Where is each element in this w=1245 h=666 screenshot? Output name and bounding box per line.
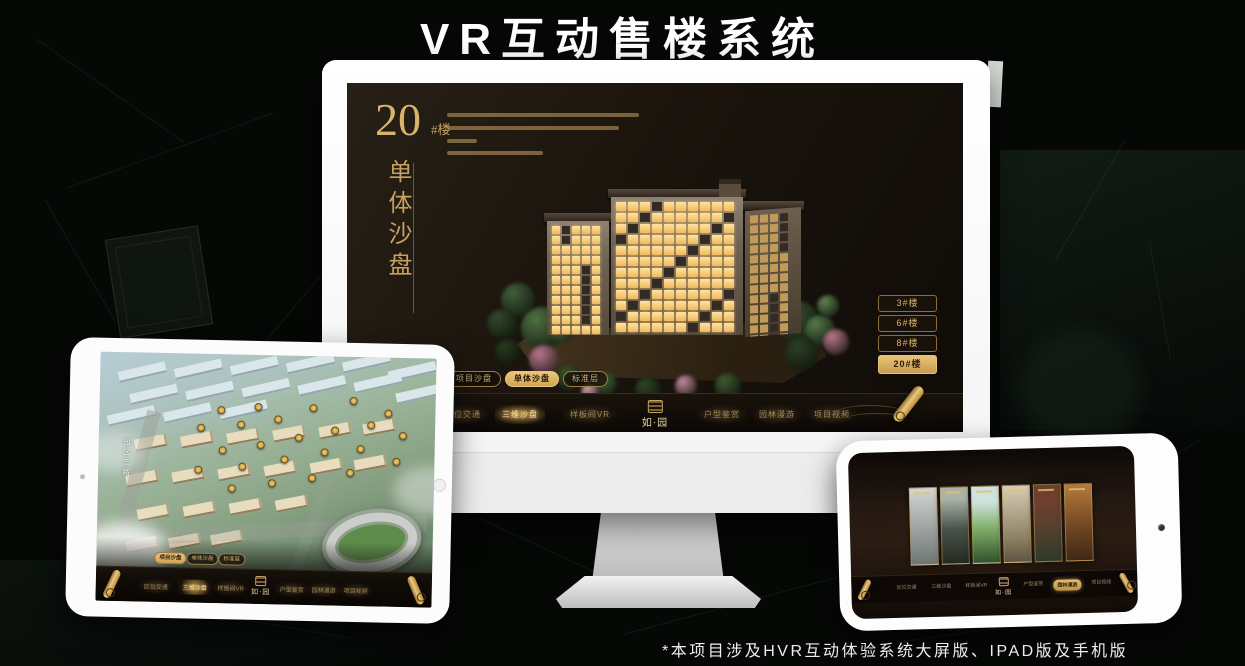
residential-building xyxy=(180,431,214,449)
window xyxy=(700,235,710,244)
window xyxy=(688,202,698,211)
window xyxy=(676,290,686,299)
page-title: VR互动售楼系统 xyxy=(0,3,1245,67)
tablet-nav-bar: 区位交通 三维沙盘 样板间VR 如·园 户型鉴赏 园林漫游 项目视频 xyxy=(95,566,432,608)
window xyxy=(676,257,686,266)
window xyxy=(592,266,600,274)
window xyxy=(582,236,590,244)
white-building xyxy=(174,359,223,380)
window xyxy=(700,323,710,332)
road-name-label: 园区三路 xyxy=(120,438,131,478)
window xyxy=(592,226,600,234)
residential-building xyxy=(354,454,388,472)
window xyxy=(770,214,778,223)
window xyxy=(700,246,710,255)
window xyxy=(780,273,788,282)
nav-item-floorplans[interactable]: 户型鉴赏 xyxy=(275,581,309,597)
window xyxy=(724,268,734,277)
window xyxy=(582,326,590,334)
window xyxy=(688,257,698,266)
window xyxy=(724,235,734,244)
window xyxy=(712,213,722,222)
window xyxy=(640,290,650,299)
window xyxy=(652,213,662,222)
white-building xyxy=(118,361,167,382)
window xyxy=(770,294,778,303)
background-foliage xyxy=(1020,330,1140,450)
building-number-marker[interactable] xyxy=(350,397,358,405)
window xyxy=(572,326,580,334)
window xyxy=(562,316,570,324)
building-button-8[interactable]: 8#楼 xyxy=(878,335,937,352)
window xyxy=(760,274,768,283)
window xyxy=(640,213,650,222)
window xyxy=(640,312,650,321)
window xyxy=(552,236,560,244)
window xyxy=(616,257,626,266)
window xyxy=(688,301,698,310)
window xyxy=(712,323,722,332)
building-number-marker[interactable] xyxy=(399,432,407,440)
window xyxy=(664,202,674,211)
window xyxy=(724,279,734,288)
map-line xyxy=(45,200,116,322)
window xyxy=(750,235,758,244)
scene-panel-study[interactable] xyxy=(1064,483,1094,562)
window xyxy=(562,296,570,304)
building-button-20[interactable]: 20#楼 xyxy=(878,355,937,374)
white-building xyxy=(395,383,436,404)
window xyxy=(652,323,662,332)
tree xyxy=(817,295,839,317)
window xyxy=(712,290,722,299)
brand-logo: 如·园 xyxy=(251,576,271,597)
white-building xyxy=(185,381,234,402)
residential-building xyxy=(136,504,170,522)
window xyxy=(582,246,590,254)
building-number-marker[interactable] xyxy=(197,424,205,432)
building-number-marker[interactable] xyxy=(295,434,303,442)
window xyxy=(552,296,560,304)
window xyxy=(760,234,768,243)
background-plaque xyxy=(105,225,213,338)
window xyxy=(770,304,778,313)
building-number-marker[interactable] xyxy=(228,484,236,492)
monitor-stand-neck xyxy=(592,510,724,582)
window xyxy=(780,283,788,292)
nav-item-garden-roam[interactable]: 园林漫游 xyxy=(307,582,341,598)
cloud xyxy=(393,466,436,517)
phone-device: 区位交通 三维沙盘 样板间VR 如·园 户型鉴赏 园林漫游 项目视频 xyxy=(836,433,1183,632)
scene-panel-interior[interactable] xyxy=(940,486,970,565)
building-number-marker[interactable] xyxy=(268,479,276,487)
phone-camera-icon xyxy=(1158,524,1165,531)
window xyxy=(616,235,626,244)
window xyxy=(724,323,734,332)
building-number-marker[interactable] xyxy=(346,469,354,477)
tablet-app-screen[interactable]: 园区三路 项目沙盘 单体沙盘 标准层 区位交通 三维沙盘 样板间VR 如·园 户… xyxy=(95,352,436,608)
window xyxy=(652,279,662,288)
window xyxy=(616,312,626,321)
building-number-marker[interactable] xyxy=(331,426,339,434)
window xyxy=(552,246,560,254)
window xyxy=(760,284,768,293)
tree xyxy=(785,337,819,371)
window xyxy=(562,226,570,234)
window xyxy=(592,326,600,334)
window xyxy=(552,316,560,324)
scroll-roller-icon[interactable] xyxy=(406,575,425,606)
window xyxy=(700,301,710,310)
window xyxy=(780,213,788,222)
window xyxy=(628,290,638,299)
window xyxy=(770,254,778,263)
brand-logo: 如·园 xyxy=(995,577,1012,596)
window xyxy=(780,253,788,262)
window xyxy=(664,290,674,299)
window xyxy=(724,301,734,310)
tablet-camera-icon xyxy=(80,474,85,479)
seal-icon xyxy=(998,577,1008,586)
white-building xyxy=(286,353,335,374)
tab-project-sandtable[interactable]: 项目沙盘 xyxy=(447,371,501,387)
window xyxy=(676,213,686,222)
window xyxy=(652,301,662,310)
window xyxy=(676,235,686,244)
window xyxy=(724,290,734,299)
window xyxy=(760,304,768,313)
window xyxy=(724,202,734,211)
window xyxy=(582,226,590,234)
window xyxy=(724,312,734,321)
window xyxy=(592,306,600,314)
brand-logo: 如·园 xyxy=(642,400,668,429)
white-building xyxy=(230,356,279,377)
window xyxy=(592,276,600,284)
window xyxy=(760,264,768,273)
window xyxy=(760,224,768,233)
window xyxy=(724,213,734,222)
window xyxy=(760,324,768,333)
white-building xyxy=(241,378,290,399)
window xyxy=(552,326,560,334)
footnote-text: *本项目涉及HVR互动体验系统大屏版、IPAD版及手机版 xyxy=(662,637,1128,661)
poster-canvas: VR互动售楼系统 20 #楼 单体沙盘 3#楼 xyxy=(0,0,1245,666)
white-building xyxy=(163,402,212,423)
building-main xyxy=(611,197,743,335)
window xyxy=(562,266,570,274)
window xyxy=(712,279,722,288)
window xyxy=(592,246,600,254)
building-number-marker[interactable] xyxy=(274,415,282,423)
window xyxy=(572,256,580,264)
window xyxy=(552,226,560,234)
window xyxy=(592,236,600,244)
window xyxy=(750,215,758,224)
window xyxy=(582,296,590,304)
phone-app-screen[interactable]: 区位交通 三维沙盘 样板间VR 如·园 户型鉴赏 园林漫游 项目视频 xyxy=(848,446,1138,619)
window xyxy=(552,306,560,314)
window xyxy=(616,246,626,255)
window xyxy=(628,268,638,277)
tablet-tab-project-sandtable[interactable]: 项目沙盘 xyxy=(154,552,186,565)
nav-item-location[interactable]: 区位交通 xyxy=(139,578,173,594)
building-number-marker[interactable] xyxy=(384,410,392,418)
window xyxy=(688,224,698,233)
window xyxy=(640,323,650,332)
nav-item-garden-roam[interactable]: 园林漫游 xyxy=(752,405,802,424)
nav-item-project-video[interactable]: 项目视频 xyxy=(1091,578,1111,586)
window xyxy=(640,268,650,277)
window xyxy=(712,301,722,310)
window xyxy=(770,274,778,283)
window xyxy=(616,202,626,211)
window xyxy=(552,256,560,264)
window xyxy=(572,286,580,294)
window xyxy=(712,312,722,321)
window xyxy=(688,323,698,332)
window xyxy=(688,290,698,299)
window xyxy=(780,313,788,322)
window xyxy=(760,294,768,303)
window xyxy=(770,224,778,233)
window xyxy=(750,315,758,324)
window xyxy=(616,290,626,299)
window xyxy=(582,276,590,284)
window xyxy=(688,235,698,244)
window xyxy=(616,224,626,233)
window xyxy=(664,235,674,244)
nav-item-floorplans[interactable]: 户型鉴赏 xyxy=(697,405,747,424)
scene-panel-courtyard[interactable] xyxy=(909,487,939,566)
tablet-device: 园区三路 项目沙盘 单体沙盘 标准层 区位交通 三维沙盘 样板间VR 如·园 户… xyxy=(65,337,455,624)
residential-building xyxy=(275,495,309,513)
residential-building xyxy=(229,498,263,516)
building-wing-left xyxy=(547,221,609,335)
scene-panel-garden[interactable] xyxy=(971,485,1001,564)
window xyxy=(664,257,674,266)
nav-item-showroom-vr[interactable]: 样板间VR xyxy=(563,405,617,424)
window xyxy=(664,301,674,310)
residential-building xyxy=(263,461,297,479)
window xyxy=(562,286,570,294)
nav-item-3d-sandtable[interactable]: 三维沙盘 xyxy=(931,583,951,591)
window xyxy=(700,213,710,222)
window xyxy=(780,233,788,242)
window xyxy=(616,323,626,332)
window xyxy=(688,279,698,288)
window xyxy=(628,312,638,321)
window xyxy=(688,312,698,321)
building-button-6[interactable]: 6#楼 xyxy=(878,315,937,332)
window xyxy=(640,202,650,211)
window xyxy=(640,279,650,288)
window xyxy=(688,213,698,222)
window xyxy=(592,316,600,324)
residential-building xyxy=(183,501,217,519)
nav-item-location[interactable]: 区位交通 xyxy=(896,583,916,591)
building-number-marker[interactable] xyxy=(237,421,245,429)
window xyxy=(750,225,758,234)
window xyxy=(760,254,768,263)
window xyxy=(780,303,788,312)
scroll-roller-icon[interactable] xyxy=(1118,572,1134,594)
nav-item-showroom-vr[interactable]: 样板间VR xyxy=(965,582,987,590)
residential-building xyxy=(226,428,260,446)
seal-icon xyxy=(648,400,663,413)
window xyxy=(552,276,560,284)
window xyxy=(664,246,674,255)
seal-icon xyxy=(255,576,266,586)
window xyxy=(664,312,674,321)
scroll-roller-icon[interactable] xyxy=(857,579,872,601)
window xyxy=(572,246,580,254)
window xyxy=(700,268,710,277)
window xyxy=(572,266,580,274)
building-number-marker[interactable] xyxy=(257,441,265,449)
window xyxy=(562,276,570,284)
window xyxy=(628,202,638,211)
window xyxy=(616,268,626,277)
window xyxy=(700,257,710,266)
window xyxy=(640,235,650,244)
window xyxy=(770,314,778,323)
nav-item-project-video[interactable]: 项目视频 xyxy=(339,583,373,599)
window xyxy=(552,286,560,294)
window xyxy=(628,224,638,233)
window xyxy=(628,213,638,222)
building-button-3[interactable]: 3#楼 xyxy=(878,295,937,312)
building-wing-right xyxy=(745,207,801,337)
window xyxy=(780,263,788,272)
nav-item-3d-sandtable[interactable]: 三维沙盘 xyxy=(495,405,545,424)
window xyxy=(724,246,734,255)
window xyxy=(780,293,788,302)
building-model-viewport[interactable] xyxy=(487,171,847,396)
window xyxy=(780,223,788,232)
nav-item-floorplans[interactable]: 户型鉴赏 xyxy=(1023,580,1043,588)
window xyxy=(640,301,650,310)
window xyxy=(700,224,710,233)
scroll-roller-icon[interactable] xyxy=(102,569,122,600)
nav-item-garden-roam[interactable]: 园林漫游 xyxy=(1053,579,1081,591)
window xyxy=(562,236,570,244)
white-building xyxy=(129,384,178,405)
window xyxy=(688,246,698,255)
window xyxy=(760,244,768,253)
scene-panel-autumn[interactable] xyxy=(1033,484,1063,563)
window xyxy=(760,314,768,323)
building-number-marker[interactable] xyxy=(309,404,317,412)
window xyxy=(562,326,570,334)
window xyxy=(770,284,778,293)
window xyxy=(552,266,560,274)
sandtable-mode-heading: 单体沙盘 xyxy=(380,159,415,283)
window xyxy=(770,234,778,243)
window xyxy=(770,244,778,253)
window xyxy=(572,276,580,284)
window xyxy=(712,235,722,244)
window xyxy=(700,202,710,211)
window xyxy=(712,202,722,211)
window xyxy=(572,236,580,244)
building-number-marker[interactable] xyxy=(219,446,227,454)
window xyxy=(664,213,674,222)
window xyxy=(676,202,686,211)
window xyxy=(582,286,590,294)
tree xyxy=(495,339,521,365)
window xyxy=(616,279,626,288)
window xyxy=(712,257,722,266)
white-building xyxy=(353,372,402,393)
window xyxy=(572,306,580,314)
tree xyxy=(823,329,849,355)
window xyxy=(640,257,650,266)
building-number-marker[interactable] xyxy=(357,445,365,453)
window xyxy=(628,246,638,255)
aerial-masterplan-view[interactable] xyxy=(101,352,437,359)
window xyxy=(640,246,650,255)
tab-single-sandtable[interactable]: 单体沙盘 xyxy=(505,371,559,387)
window xyxy=(582,306,590,314)
window xyxy=(640,224,650,233)
window xyxy=(700,312,710,321)
window xyxy=(664,279,674,288)
phone-nav-bar: 区位交通 三维沙盘 样板间VR 如·园 户型鉴赏 园林漫游 项目视频 xyxy=(851,569,1138,603)
monitor-stand-base xyxy=(556,576,761,608)
window xyxy=(582,256,590,264)
tab-standard-floor[interactable]: 标准层 xyxy=(563,371,608,387)
window xyxy=(750,265,758,274)
window xyxy=(628,323,638,332)
building-number-marker[interactable] xyxy=(321,448,329,456)
window xyxy=(628,235,638,244)
nav-item-3d-sandtable[interactable]: 三维沙盘 xyxy=(178,579,212,595)
window xyxy=(700,279,710,288)
window xyxy=(582,266,590,274)
window xyxy=(770,264,778,273)
window xyxy=(770,324,778,333)
window xyxy=(652,290,662,299)
white-building xyxy=(297,375,346,396)
window xyxy=(664,224,674,233)
window xyxy=(616,301,626,310)
building-number-marker[interactable] xyxy=(392,458,400,466)
window xyxy=(750,255,758,264)
window xyxy=(780,243,788,252)
window xyxy=(652,257,662,266)
window xyxy=(562,306,570,314)
window xyxy=(676,312,686,321)
window xyxy=(628,301,638,310)
tablet-tab-single-sandtable[interactable]: 单体沙盘 xyxy=(186,552,218,565)
tablet-home-button[interactable] xyxy=(433,478,446,491)
nav-item-showroom-vr[interactable]: 样板间VR xyxy=(212,580,249,596)
window xyxy=(676,246,686,255)
scene-panel-facade[interactable] xyxy=(1002,484,1032,563)
window xyxy=(572,296,580,304)
window xyxy=(750,275,758,284)
window xyxy=(652,202,662,211)
heading-rule xyxy=(413,163,414,313)
window xyxy=(592,256,600,264)
window xyxy=(750,285,758,294)
window xyxy=(616,213,626,222)
building-number-marker[interactable] xyxy=(308,474,316,482)
window xyxy=(582,316,590,324)
tablet-tab-standard-floor[interactable]: 标准层 xyxy=(218,553,245,566)
window xyxy=(724,257,734,266)
